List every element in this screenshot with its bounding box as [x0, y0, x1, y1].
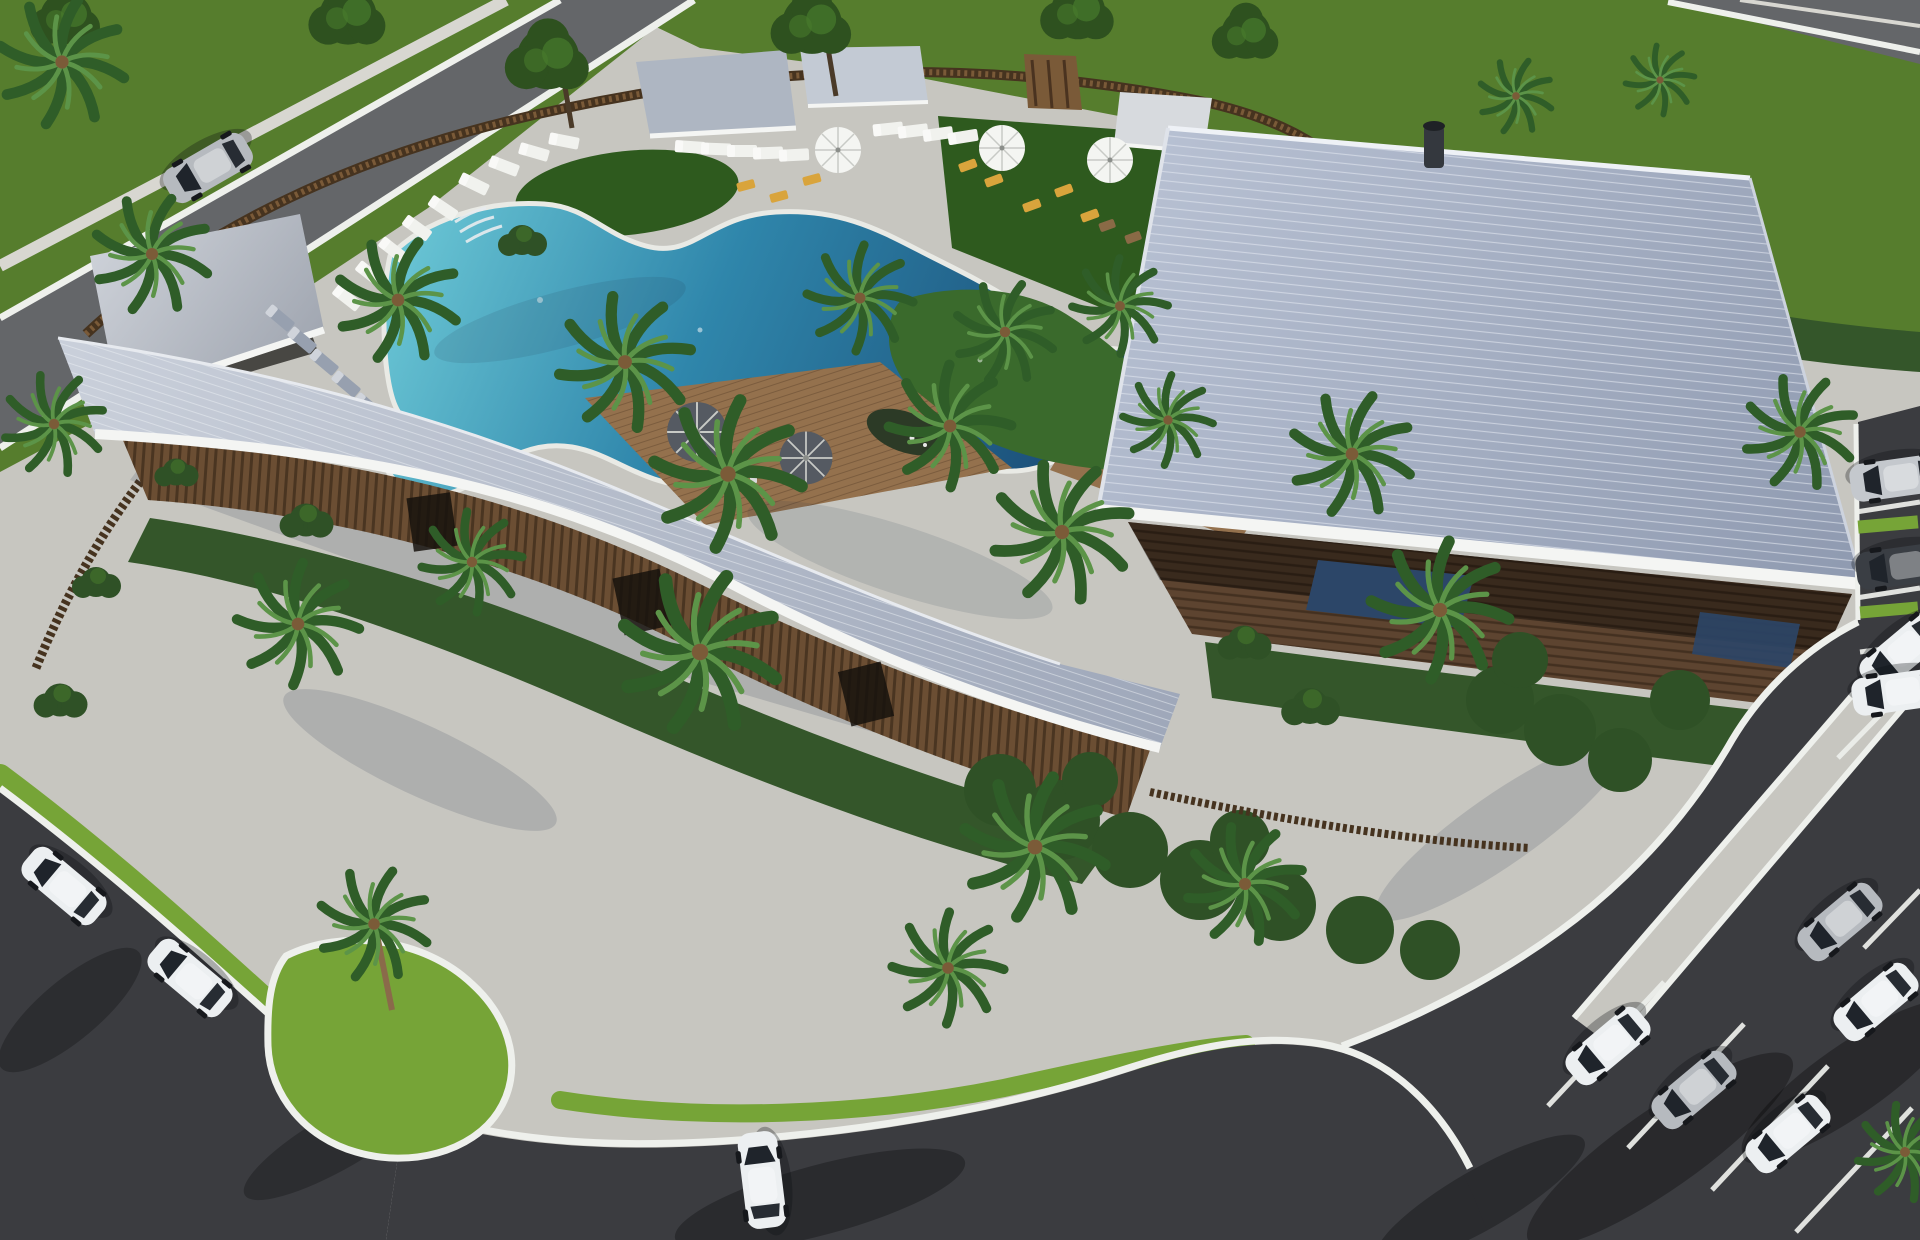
rendering-canvas [0, 0, 1920, 1240]
resort-aerial-rendering [0, 0, 1920, 1240]
roof-chimney [1423, 121, 1445, 168]
curb [1856, 424, 1858, 620]
cabana-roof [636, 50, 796, 136]
cabana-roof [800, 46, 928, 106]
pergola-wood [1024, 54, 1082, 110]
